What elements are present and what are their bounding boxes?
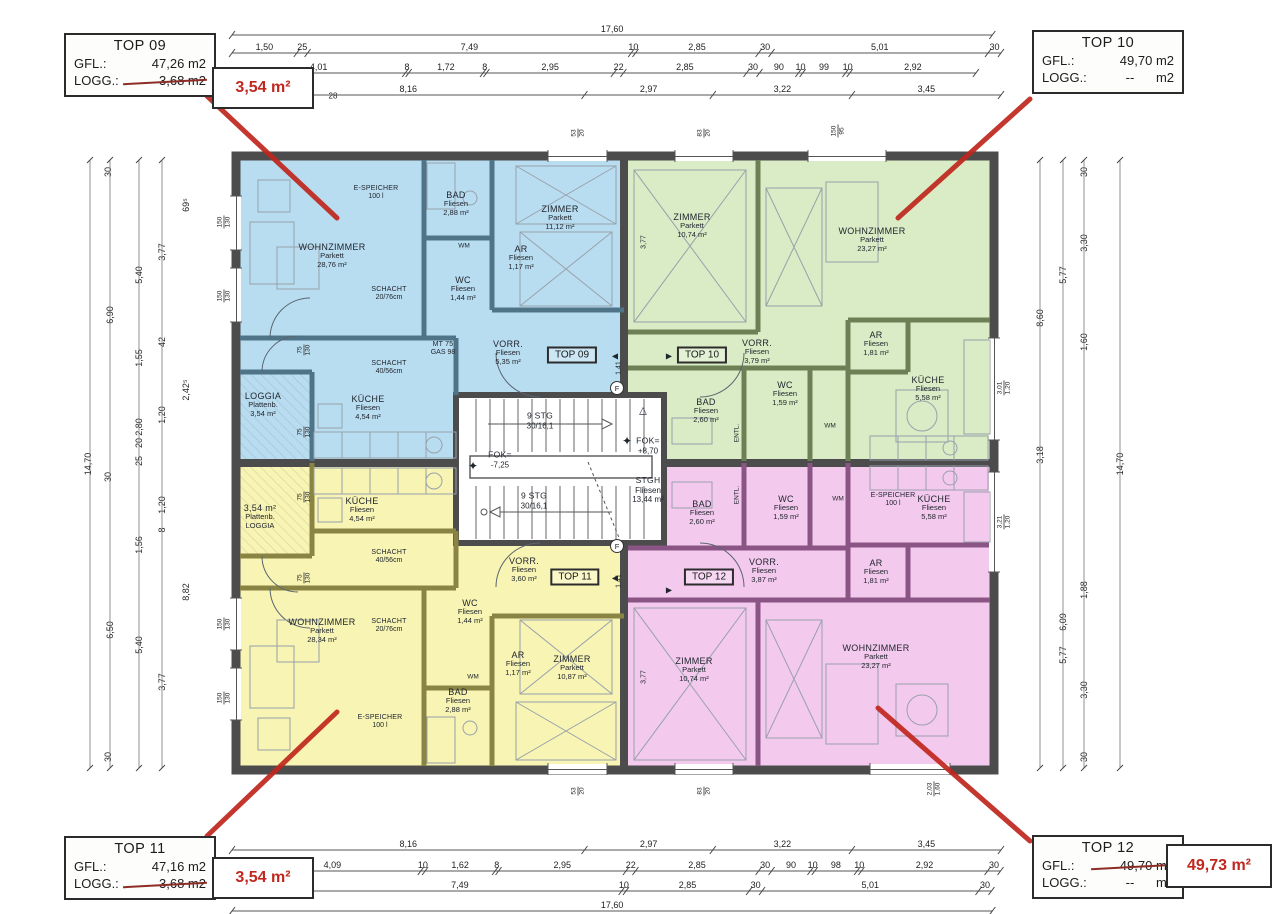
dimension-label: 2,85 — [676, 62, 694, 72]
dimension-label: 2,85 — [679, 880, 697, 890]
dimension-label: 10 — [418, 860, 428, 870]
dimension-label: 30 — [989, 42, 999, 52]
dimension-label: 1,50 — [256, 42, 274, 52]
dimension-label: 17,60 — [601, 24, 624, 34]
window-size-label: 5320 — [571, 786, 586, 795]
window-size-label: 8320 — [697, 786, 712, 795]
dimension-label: 3,77 — [157, 671, 167, 693]
dimension-label: 22 — [614, 62, 624, 72]
dimension-label: 6,50 — [105, 619, 115, 641]
dimension-label: 1,56 — [134, 534, 144, 556]
corrected-area-note-note09: 3,54 m² — [212, 67, 314, 109]
dimension-label: 30 — [980, 880, 990, 890]
dimension-label: 99 — [819, 62, 829, 72]
dimension-label: 10 — [619, 880, 629, 890]
window-size-label: 15095 — [831, 125, 846, 138]
dimension-label: 2,97 — [640, 839, 658, 849]
dimension-label: 2,85 — [688, 860, 706, 870]
dimension-label: 1,72 — [437, 62, 455, 72]
dimension-label: 4,01 — [310, 62, 328, 72]
window-size-label: 3,011,20 — [997, 381, 1012, 396]
dimension-label: 1,60 — [1079, 331, 1089, 353]
unit-title: TOP 09 — [74, 38, 206, 54]
unit-title: TOP 11 — [74, 841, 206, 857]
plan-annotation: 28 — [329, 92, 338, 101]
unit-info-box-top10: TOP 10GFL.:49,70 m2LOGG.:-- m2 — [1032, 30, 1184, 94]
window-size-label: 8320 — [697, 128, 712, 137]
loggia-top09 — [240, 372, 312, 463]
dimension-label: 3,45 — [918, 839, 936, 849]
window-size-label: 3,211,20 — [997, 515, 1012, 530]
area-row: LOGG.:-- m2 — [1042, 69, 1174, 86]
unit-info-box-top09: TOP 09GFL.:47,26 m2LOGG.:3,68 m2 — [64, 33, 216, 97]
unit-info-box-top12: TOP 12GFL.:49,70 m2LOGG.:-- m2 — [1032, 835, 1184, 899]
dimension-label: 10 — [796, 62, 806, 72]
area-row: GFL.:49,70 m2 — [1042, 52, 1174, 69]
dimension-label: 1,20 — [157, 404, 167, 426]
dimension-label: 1,20 — [157, 494, 167, 516]
dimension-label: 14,70 — [83, 451, 93, 478]
dimension-label: 3,45 — [918, 84, 936, 94]
dimension-label: 6,90 — [105, 304, 115, 326]
dimension-label: 42 — [157, 335, 167, 349]
dimension-label: 30 — [760, 860, 770, 870]
dimension-label: 30 — [760, 42, 770, 52]
window-size-label: 150130 — [217, 216, 232, 229]
dimension-label: 2,92 — [916, 860, 934, 870]
dimension-label: 4,09 — [324, 860, 342, 870]
dimension-label: 2,95 — [553, 860, 571, 870]
area-row: GFL.:47,26 m2 — [74, 55, 206, 72]
dimension-label: 22 — [626, 860, 636, 870]
dimension-label: 90 — [774, 62, 784, 72]
dimension-label: 3,22 — [774, 84, 792, 94]
dimension-label: 8 — [494, 860, 499, 870]
dimension-label: 1,62 — [451, 860, 469, 870]
area-row: GFL.:49,70 m2 — [1042, 857, 1174, 874]
area-row: LOGG.:3,68 m2 — [74, 875, 206, 892]
window-size-label: 150130 — [217, 618, 232, 631]
dimension-label: 2,92 — [904, 62, 922, 72]
dimension-label: 30 — [1079, 165, 1089, 179]
window-size-label: 5320 — [571, 128, 586, 137]
unit-info-box-top11: TOP 11GFL.:47,16 m2LOGG.:3,68 m2 — [64, 836, 216, 900]
dimension-label: 3,30 — [1079, 232, 1089, 254]
dimension-label: 5,77 — [1058, 264, 1068, 286]
dimension-label: 2,85 — [688, 42, 706, 52]
dimension-label: 69⁵ — [181, 196, 191, 214]
dimension-label: 10 — [843, 62, 853, 72]
dimension-label: 14,70 — [1115, 451, 1125, 478]
dimension-label: 25 — [134, 454, 144, 468]
dimension-label: 30 — [748, 62, 758, 72]
dimension-label: 30 — [751, 880, 761, 890]
loggia-top11 — [240, 463, 312, 556]
dimension-label: 30 — [103, 470, 113, 484]
dimension-label: 5,40 — [134, 634, 144, 656]
dimension-label: 8,82 — [181, 581, 191, 603]
unit-title: TOP 10 — [1042, 35, 1174, 51]
floor-plan-page: WOHNZIMMERParkett28,76 m²ZIMMERParkett11… — [0, 0, 1280, 914]
dimension-label: 8,16 — [399, 84, 417, 94]
dimension-label: 2,95 — [541, 62, 559, 72]
dimension-label: 8,60 — [1035, 307, 1045, 329]
dimension-label: 30 — [1079, 750, 1089, 764]
dimension-label: 28 — [233, 860, 243, 870]
dimension-label: 10 — [628, 42, 638, 52]
dimension-label: 3,18 — [1035, 444, 1045, 466]
dimension-label: 1,88 — [1079, 579, 1089, 601]
dimension-label: 2,97 — [640, 84, 658, 94]
dimension-label: 7,49 — [461, 42, 479, 52]
dimension-label: 5,40 — [134, 264, 144, 286]
dimension-label: 3,22 — [774, 839, 792, 849]
area-row: GFL.:47,16 m2 — [74, 858, 206, 875]
dimension-label: 7,49 — [451, 880, 469, 890]
dimension-label: 17,60 — [601, 900, 624, 910]
dimension-label: 90 — [786, 860, 796, 870]
corrected-area-note-note11: 3,54 m² — [212, 857, 314, 899]
area-row: LOGG.:3,68 m2 — [74, 72, 206, 89]
dimension-label: 30 — [103, 750, 113, 764]
window-size-label: 150130 — [217, 692, 232, 705]
dimension-label: 2,80 — [134, 416, 144, 438]
dimension-label: 8 — [482, 62, 487, 72]
dimension-label: 30 — [103, 165, 113, 179]
dimension-label: 10 — [808, 860, 818, 870]
dimension-label: 1,55 — [134, 347, 144, 369]
dimension-label: 25 — [297, 42, 307, 52]
dimension-label: 8,16 — [399, 839, 417, 849]
area-row: LOGG.:-- m2 — [1042, 874, 1174, 891]
dimension-label: 3,77 — [157, 241, 167, 263]
apartment-area-top10 — [624, 160, 990, 463]
dimension-label: 8 — [404, 62, 409, 72]
corrected-area-note-note12: 49,73 m² — [1166, 844, 1272, 888]
window-size-label: 150130 — [217, 290, 232, 303]
dimension-label: 5,77 — [1058, 644, 1068, 666]
window-size-label: 2,031,60 — [927, 782, 942, 797]
unit-title: TOP 12 — [1042, 840, 1174, 856]
dimension-label: 6,09 — [1058, 611, 1068, 633]
dimension-label: 30 — [989, 860, 999, 870]
dimension-label: 5,01 — [871, 42, 889, 52]
apartment-area-top12 — [624, 463, 990, 766]
dimension-label: 3,30 — [1079, 679, 1089, 701]
dimension-label: 8 — [157, 525, 167, 534]
dimension-label: 5,01 — [862, 880, 880, 890]
dimension-label: 98 — [831, 860, 841, 870]
dimension-label: 25 — [288, 880, 298, 890]
dimension-label: 20 — [134, 436, 144, 450]
dimension-label: 2,42⁵ — [181, 377, 191, 402]
dimension-label: 10 — [854, 860, 864, 870]
